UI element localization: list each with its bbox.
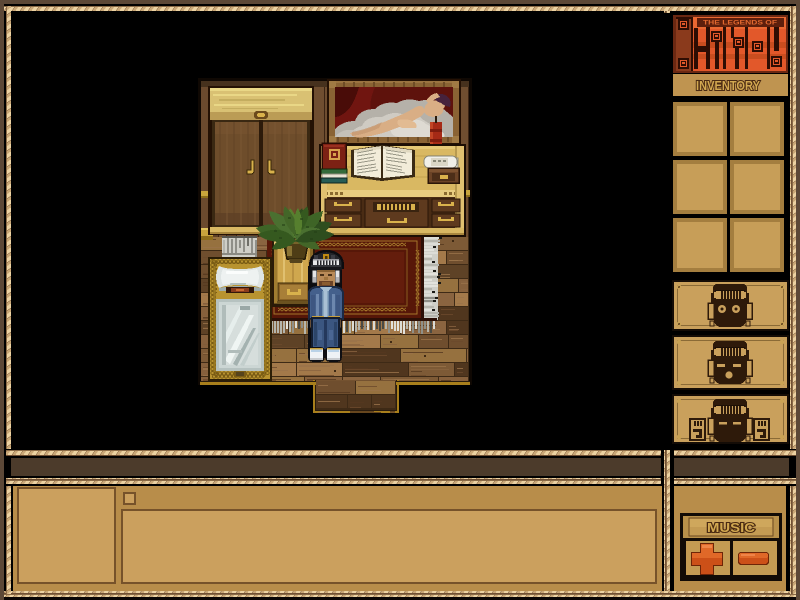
svg-text:MUSIC: MUSIC: [707, 521, 755, 535]
svg-text:THE LEGENDS OF: THE LEGENDS OF: [703, 21, 777, 27]
svg-text:INVENTORY: INVENTORY: [696, 79, 761, 93]
